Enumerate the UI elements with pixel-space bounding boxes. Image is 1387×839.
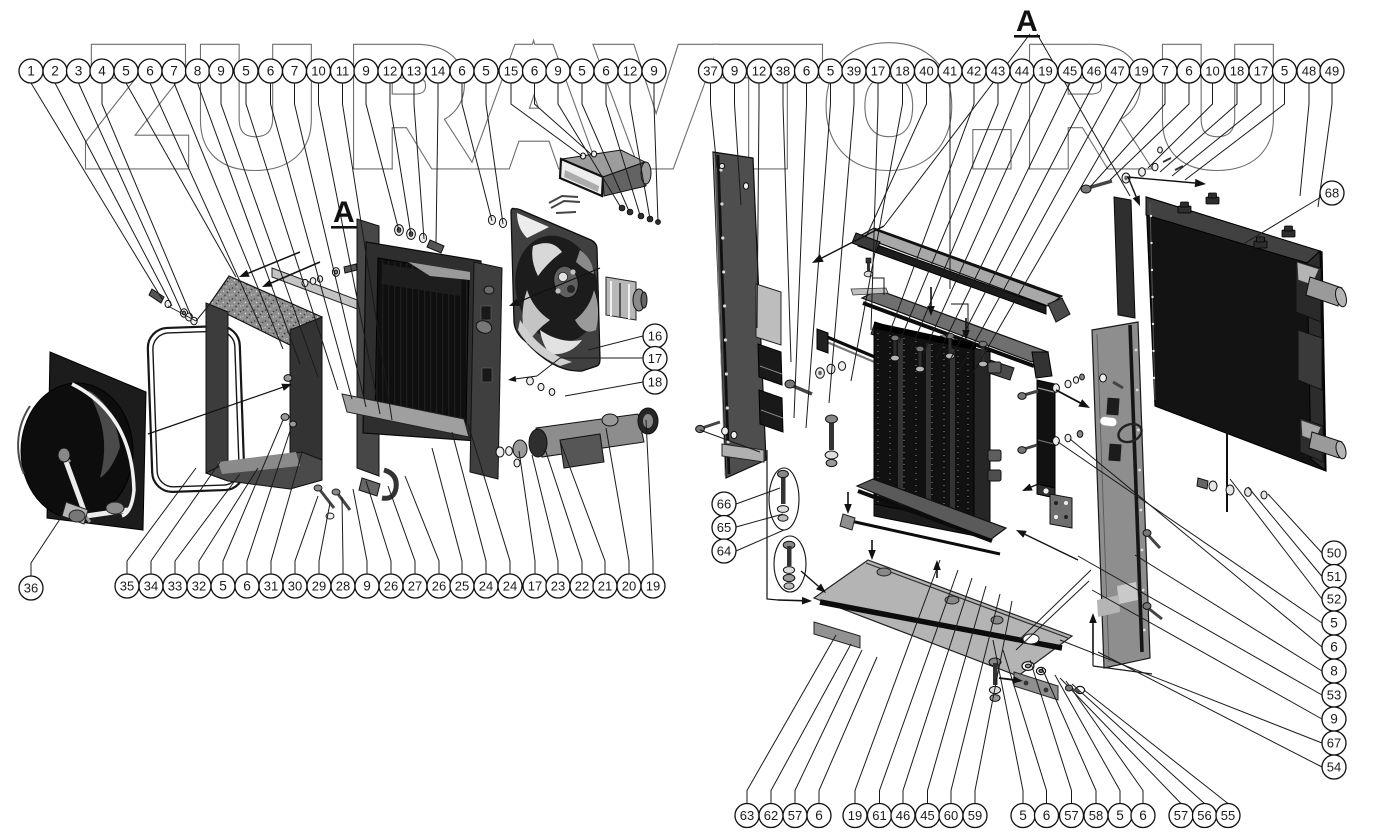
svg-text:5: 5 bbox=[219, 579, 227, 594]
svg-text:6: 6 bbox=[1139, 808, 1147, 823]
svg-text:45: 45 bbox=[1063, 64, 1077, 79]
svg-text:57: 57 bbox=[1064, 808, 1078, 823]
svg-text:R: R bbox=[351, 19, 465, 195]
svg-text:5: 5 bbox=[1330, 616, 1338, 631]
svg-text:21: 21 bbox=[598, 579, 612, 594]
svg-text:24: 24 bbox=[479, 579, 493, 594]
svg-text:6: 6 bbox=[815, 808, 823, 823]
svg-text:53: 53 bbox=[1327, 688, 1341, 703]
svg-text:31: 31 bbox=[264, 579, 278, 594]
svg-text:12: 12 bbox=[752, 64, 766, 79]
svg-text:68: 68 bbox=[1325, 186, 1339, 201]
svg-text:16: 16 bbox=[648, 329, 662, 344]
svg-text:10: 10 bbox=[311, 64, 325, 79]
svg-text:18: 18 bbox=[1230, 64, 1244, 79]
svg-text:39: 39 bbox=[847, 64, 861, 79]
svg-text:35: 35 bbox=[120, 579, 134, 594]
svg-text:7: 7 bbox=[291, 64, 299, 79]
svg-text:51: 51 bbox=[1327, 569, 1341, 584]
svg-text:O: O bbox=[828, 19, 951, 195]
svg-text:55: 55 bbox=[1221, 808, 1235, 823]
svg-text:33: 33 bbox=[168, 579, 182, 594]
svg-text:4: 4 bbox=[98, 64, 106, 79]
svg-text:30: 30 bbox=[288, 579, 302, 594]
svg-text:15: 15 bbox=[504, 64, 518, 79]
svg-text:.: . bbox=[970, 19, 1014, 195]
svg-text:56: 56 bbox=[1197, 808, 1211, 823]
svg-text:8: 8 bbox=[1330, 664, 1338, 679]
svg-text:5: 5 bbox=[122, 64, 130, 79]
svg-text:54: 54 bbox=[1327, 760, 1341, 775]
svg-text:60: 60 bbox=[944, 808, 958, 823]
svg-text:19: 19 bbox=[848, 808, 862, 823]
svg-text:52: 52 bbox=[1327, 592, 1341, 607]
svg-text:40: 40 bbox=[919, 64, 933, 79]
svg-text:59: 59 bbox=[968, 808, 982, 823]
svg-text:6: 6 bbox=[1330, 640, 1338, 655]
svg-text:57: 57 bbox=[788, 808, 802, 823]
svg-text:A: A bbox=[1016, 5, 1038, 38]
svg-text:A: A bbox=[333, 196, 355, 229]
svg-text:17: 17 bbox=[528, 579, 542, 594]
svg-text:6: 6 bbox=[458, 64, 466, 79]
svg-text:61: 61 bbox=[872, 808, 886, 823]
svg-text:9: 9 bbox=[554, 64, 562, 79]
svg-text:46: 46 bbox=[1087, 64, 1101, 79]
svg-text:5: 5 bbox=[482, 64, 490, 79]
svg-text:11: 11 bbox=[336, 64, 350, 79]
svg-text:38: 38 bbox=[776, 64, 790, 79]
svg-text:25: 25 bbox=[455, 579, 469, 594]
svg-text:6: 6 bbox=[602, 64, 610, 79]
svg-text:41: 41 bbox=[943, 64, 957, 79]
svg-text:28: 28 bbox=[336, 579, 350, 594]
svg-text:U: U bbox=[199, 19, 313, 195]
svg-text:43: 43 bbox=[991, 64, 1005, 79]
svg-text:58: 58 bbox=[1089, 808, 1103, 823]
svg-text:9: 9 bbox=[217, 64, 225, 79]
svg-text:46: 46 bbox=[896, 808, 910, 823]
svg-text:7: 7 bbox=[1161, 64, 1169, 79]
svg-text:64: 64 bbox=[717, 544, 731, 559]
svg-text:5: 5 bbox=[1116, 808, 1124, 823]
svg-text:19: 19 bbox=[646, 579, 660, 594]
svg-text:19: 19 bbox=[1038, 64, 1052, 79]
svg-text:9: 9 bbox=[1330, 712, 1338, 727]
svg-text:6: 6 bbox=[803, 64, 811, 79]
svg-text:6: 6 bbox=[531, 64, 539, 79]
svg-text:17: 17 bbox=[871, 64, 885, 79]
svg-text:36: 36 bbox=[24, 581, 38, 596]
svg-text:26: 26 bbox=[384, 579, 398, 594]
svg-text:12: 12 bbox=[383, 64, 397, 79]
svg-text:48: 48 bbox=[1302, 64, 1316, 79]
svg-text:9: 9 bbox=[731, 64, 739, 79]
svg-text:34: 34 bbox=[144, 579, 158, 594]
svg-text:5: 5 bbox=[827, 64, 835, 79]
svg-text:23: 23 bbox=[551, 579, 565, 594]
svg-text:65: 65 bbox=[717, 520, 731, 535]
svg-text:27: 27 bbox=[408, 579, 422, 594]
svg-text:6: 6 bbox=[146, 64, 154, 79]
svg-text:8: 8 bbox=[194, 64, 202, 79]
svg-text:63: 63 bbox=[740, 808, 754, 823]
svg-text:24: 24 bbox=[503, 579, 517, 594]
svg-text:13: 13 bbox=[407, 64, 421, 79]
svg-text:26: 26 bbox=[432, 579, 446, 594]
svg-text:1: 1 bbox=[27, 64, 35, 79]
svg-text:10: 10 bbox=[1205, 64, 1219, 79]
svg-text:47: 47 bbox=[1110, 64, 1124, 79]
svg-text:3: 3 bbox=[75, 64, 83, 79]
svg-text:19: 19 bbox=[1134, 64, 1148, 79]
svg-text:37: 37 bbox=[703, 64, 717, 79]
svg-text:32: 32 bbox=[192, 579, 206, 594]
svg-text:7: 7 bbox=[170, 64, 178, 79]
svg-text:44: 44 bbox=[1015, 64, 1029, 79]
svg-text:17: 17 bbox=[648, 351, 662, 366]
svg-text:5: 5 bbox=[242, 64, 250, 79]
svg-text:9: 9 bbox=[363, 579, 371, 594]
svg-text:42: 42 bbox=[967, 64, 981, 79]
svg-text:5: 5 bbox=[1281, 64, 1289, 79]
svg-text:5: 5 bbox=[578, 64, 586, 79]
svg-text:18: 18 bbox=[895, 64, 909, 79]
svg-text:6: 6 bbox=[1043, 808, 1051, 823]
svg-text:5: 5 bbox=[1019, 808, 1027, 823]
svg-text:62: 62 bbox=[764, 808, 778, 823]
svg-text:14: 14 bbox=[431, 64, 445, 79]
svg-text:18: 18 bbox=[648, 375, 662, 390]
svg-text:9: 9 bbox=[650, 64, 658, 79]
svg-text:6: 6 bbox=[243, 579, 251, 594]
svg-text:45: 45 bbox=[920, 808, 934, 823]
svg-text:50: 50 bbox=[1327, 546, 1341, 561]
svg-text:20: 20 bbox=[622, 579, 636, 594]
svg-text:9: 9 bbox=[362, 64, 370, 79]
svg-text:67: 67 bbox=[1327, 736, 1341, 751]
svg-text:57: 57 bbox=[1174, 808, 1188, 823]
svg-text:29: 29 bbox=[312, 579, 326, 594]
svg-text:17: 17 bbox=[1254, 64, 1268, 79]
svg-text:12: 12 bbox=[623, 64, 637, 79]
svg-text:49: 49 bbox=[1325, 64, 1339, 79]
svg-text:2: 2 bbox=[51, 64, 59, 79]
svg-text:22: 22 bbox=[575, 579, 589, 594]
svg-text:6: 6 bbox=[1185, 64, 1193, 79]
svg-text:6: 6 bbox=[267, 64, 275, 79]
svg-text:66: 66 bbox=[717, 497, 731, 512]
